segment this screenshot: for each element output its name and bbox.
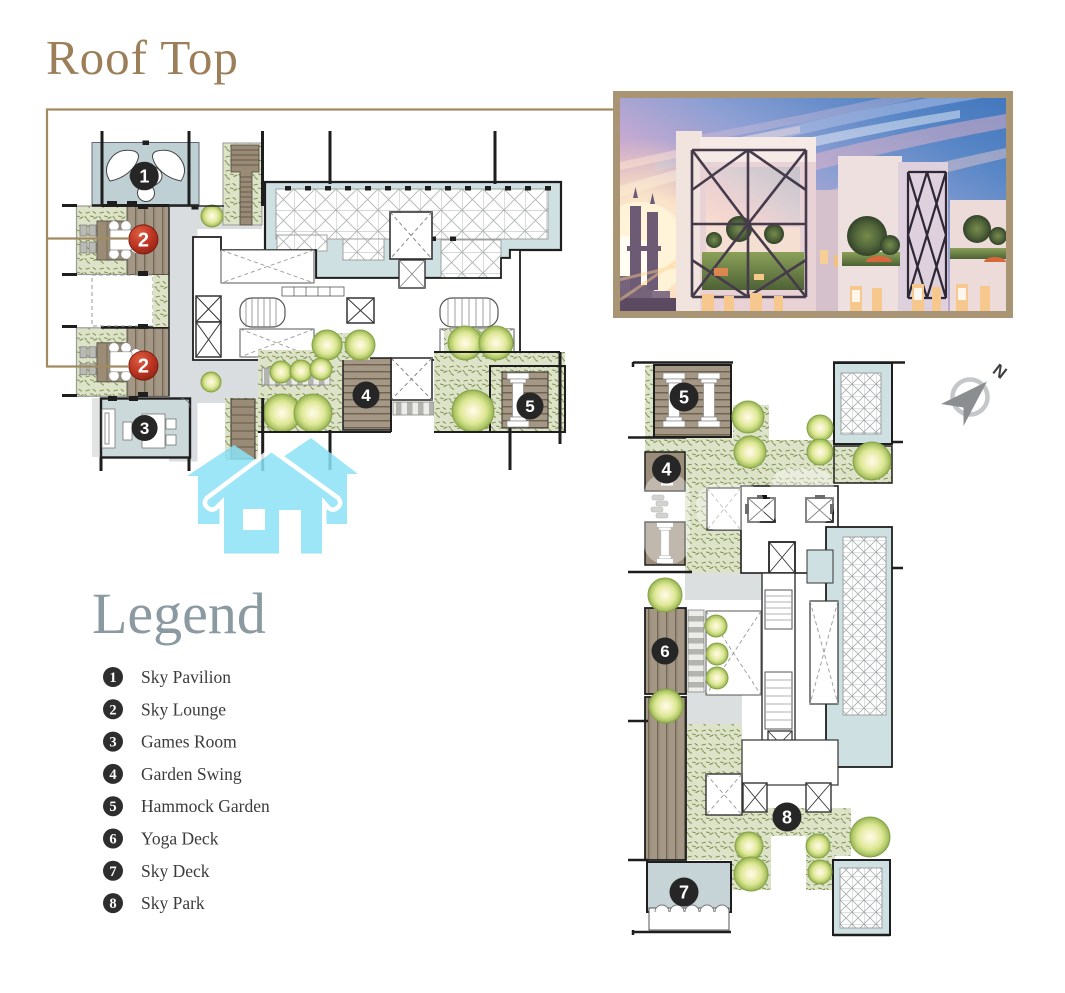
svg-text:4: 4 — [361, 386, 371, 405]
svg-text:Yoga Deck: Yoga Deck — [141, 829, 219, 849]
svg-text:3: 3 — [140, 419, 149, 438]
svg-text:7: 7 — [679, 883, 689, 903]
svg-text:2: 2 — [138, 229, 149, 251]
svg-text:5: 5 — [109, 799, 116, 815]
svg-text:2: 2 — [109, 702, 116, 718]
svg-text:5: 5 — [525, 397, 534, 416]
svg-text:1: 1 — [109, 670, 116, 686]
svg-text:Sky Park: Sky Park — [141, 893, 205, 913]
svg-text:Sky Pavilion: Sky Pavilion — [141, 667, 231, 687]
svg-text:8: 8 — [109, 896, 116, 912]
svg-text:Roof Top: Roof Top — [46, 30, 239, 85]
svg-text:4: 4 — [109, 767, 116, 783]
svg-text:1: 1 — [139, 167, 149, 187]
svg-text:N: N — [989, 360, 1010, 383]
svg-text:Games Room: Games Room — [141, 732, 237, 752]
svg-text:Sky Deck: Sky Deck — [141, 861, 210, 881]
svg-text:3: 3 — [109, 735, 116, 751]
svg-text:6: 6 — [660, 642, 669, 661]
svg-text:Hammock Garden: Hammock Garden — [141, 796, 270, 816]
svg-text:Garden Swing: Garden Swing — [141, 764, 242, 784]
svg-text:7: 7 — [109, 864, 116, 880]
svg-text:4: 4 — [661, 460, 671, 480]
svg-text:Legend: Legend — [92, 581, 266, 646]
svg-text:5: 5 — [679, 388, 689, 408]
svg-text:8: 8 — [782, 808, 792, 828]
svg-text:6: 6 — [109, 832, 116, 848]
svg-text:2: 2 — [138, 356, 149, 378]
svg-text:Sky Lounge: Sky Lounge — [141, 699, 226, 719]
